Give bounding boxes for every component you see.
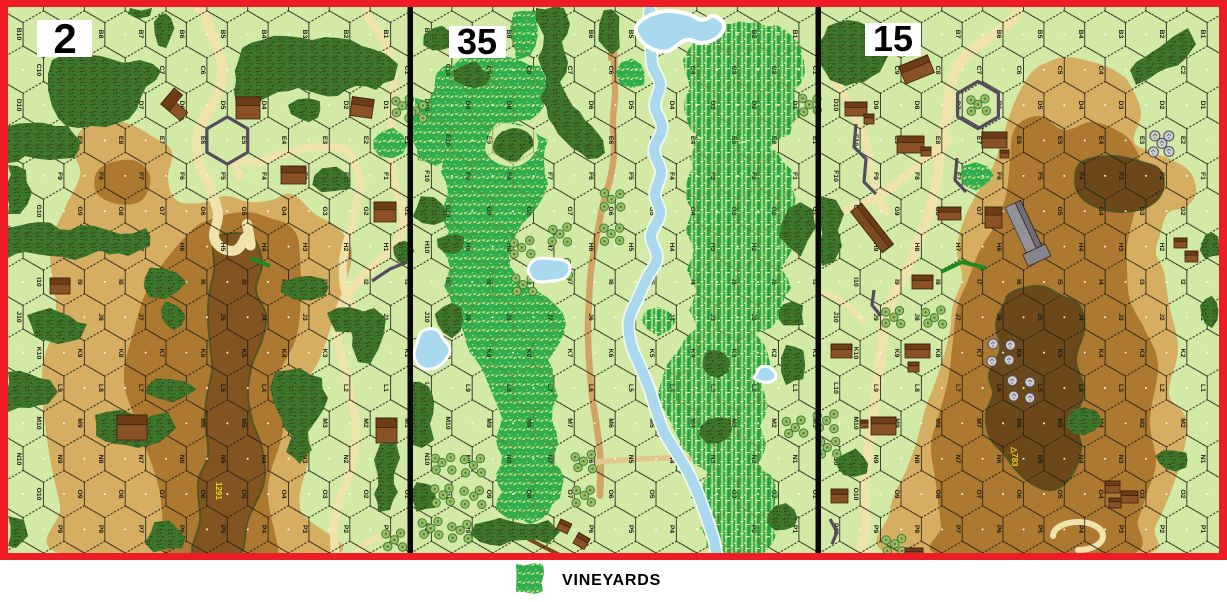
svg-text:15: 15 [873,18,913,59]
svg-text:H4: H4 [260,243,267,252]
svg-text:C4: C4 [1097,66,1104,75]
svg-text:I9: I9 [485,279,492,285]
svg-text:N8: N8 [913,455,920,464]
svg-text:O5: O5 [648,489,655,498]
svg-text:L3: L3 [1117,384,1124,392]
svg-text:G10: G10 [35,205,42,218]
svg-text:M3: M3 [321,418,328,428]
svg-text:J7: J7 [546,313,553,321]
svg-text:I3: I3 [1138,279,1145,285]
svg-text:O7: O7 [975,489,982,498]
svg-text:O4: O4 [1097,489,1104,498]
svg-text:O6: O6 [1015,489,1022,498]
svg-text:G9: G9 [76,206,83,215]
svg-text:D4: D4 [1077,101,1084,110]
svg-text:O5: O5 [240,489,247,498]
svg-text:P5: P5 [1036,525,1043,534]
svg-text:L5: L5 [219,384,226,392]
svg-text:F3: F3 [709,172,716,180]
svg-text:F5: F5 [1036,172,1043,180]
svg-text:L5: L5 [1036,384,1043,392]
svg-text:N7: N7 [546,455,553,464]
svg-text:N4: N4 [1077,455,1084,464]
svg-text:N7: N7 [954,455,961,464]
svg-text:H2: H2 [750,243,757,252]
svg-text:G3: G3 [321,206,328,215]
svg-text:K4: K4 [280,349,287,358]
svg-text:B3: B3 [1117,30,1124,39]
svg-text:G3: G3 [1138,206,1145,215]
svg-text:L2: L2 [1158,384,1165,392]
svg-text:C2: C2 [1179,66,1186,75]
svg-text:G5: G5 [1056,206,1063,215]
svg-text:L10: L10 [832,382,839,394]
svg-text:D8: D8 [913,101,920,110]
svg-text:D2: D2 [750,101,757,110]
svg-text:O9: O9 [76,489,83,498]
svg-text:E3: E3 [1138,136,1145,145]
svg-text:VINEYARDS: VINEYARDS [562,572,661,589]
svg-text:I7: I7 [975,279,982,285]
svg-text:F2: F2 [1158,172,1165,180]
svg-text:2: 2 [53,15,76,62]
svg-text:K5: K5 [240,349,247,358]
svg-text:F10: F10 [423,170,430,182]
svg-text:J9: J9 [464,313,471,321]
svg-text:J7: J7 [137,313,144,321]
svg-text:F4: F4 [668,172,675,180]
svg-text:D4: D4 [260,101,267,110]
svg-text:I9: I9 [893,279,900,285]
svg-text:N9: N9 [872,455,879,464]
svg-text:J5: J5 [1036,313,1043,321]
svg-text:K6: K6 [607,349,614,358]
svg-text:P6: P6 [587,525,594,534]
svg-text:O3: O3 [321,489,328,498]
svg-text:P1: P1 [1199,525,1206,534]
svg-text:C4: C4 [689,66,696,75]
svg-text:M10: M10 [35,416,42,429]
svg-text:N5: N5 [627,455,634,464]
svg-text:M5: M5 [1056,418,1063,428]
svg-text:P8: P8 [913,525,920,534]
svg-text:O3: O3 [1138,489,1145,498]
svg-text:P2: P2 [750,525,757,534]
svg-text:L9: L9 [872,384,879,392]
svg-text:K4: K4 [1097,349,1104,358]
svg-text:I6: I6 [199,279,206,285]
svg-text:C10: C10 [35,64,42,77]
svg-text:C6: C6 [607,66,614,75]
svg-text:E2: E2 [1179,136,1186,145]
svg-text:E7: E7 [975,136,982,145]
svg-text:H6: H6 [178,243,185,252]
svg-text:I5: I5 [1056,279,1063,285]
svg-text:P4: P4 [668,525,675,534]
svg-text:E4: E4 [280,136,287,145]
svg-text:L1: L1 [791,384,798,392]
svg-text:L6: L6 [995,384,1002,392]
svg-text:F8: F8 [913,172,920,180]
svg-text:J10: J10 [423,311,430,323]
svg-text:K8: K8 [117,349,124,358]
svg-text:G2: G2 [770,206,777,215]
svg-text:D9: D9 [872,101,879,110]
svg-text:G4: G4 [1097,206,1104,215]
svg-text:△783: △783 [1010,446,1019,467]
svg-text:F6: F6 [587,172,594,180]
svg-text:F1: F1 [1199,172,1206,180]
svg-text:N4: N4 [260,455,267,464]
svg-text:I8: I8 [934,279,941,285]
svg-text:E2: E2 [362,136,369,145]
svg-text:K9: K9 [76,349,83,358]
svg-text:H4: H4 [1077,243,1084,252]
svg-text:B2: B2 [342,30,349,39]
svg-text:E3: E3 [321,136,328,145]
svg-text:G5: G5 [240,206,247,215]
svg-text:B2: B2 [1158,30,1165,39]
svg-text:H3: H3 [301,243,308,252]
svg-text:L4: L4 [260,384,267,392]
svg-text:D9: D9 [464,101,471,110]
svg-text:J8: J8 [97,313,104,321]
svg-text:P2: P2 [1158,525,1165,534]
svg-text:G6: G6 [199,206,206,215]
svg-text:E6: E6 [199,136,206,145]
svg-text:M6: M6 [607,418,614,428]
svg-text:B1: B1 [382,30,389,39]
svg-text:35: 35 [457,21,497,62]
svg-text:J2: J2 [750,313,757,321]
svg-text:E9: E9 [485,136,492,145]
svg-text:F4: F4 [1077,172,1084,180]
svg-text:N8: N8 [97,455,104,464]
svg-text:M6: M6 [1015,418,1022,428]
svg-text:L8: L8 [913,384,920,392]
svg-text:I10: I10 [852,277,859,287]
svg-text:M8: M8 [525,418,532,428]
svg-text:F9: F9 [872,172,879,180]
svg-text:1291: 1291 [214,482,223,500]
svg-text:F5: F5 [627,172,634,180]
svg-text:B5: B5 [1036,30,1043,39]
svg-text:P3: P3 [301,525,308,534]
svg-text:L4: L4 [1077,384,1084,392]
svg-text:K6: K6 [1015,349,1022,358]
svg-text:I4: I4 [1097,279,1104,285]
svg-text:J3: J3 [709,313,716,321]
svg-text:E7: E7 [158,136,165,145]
svg-text:B5: B5 [219,30,226,39]
svg-text:L7: L7 [954,384,961,392]
svg-text:O8: O8 [117,489,124,498]
svg-text:M2: M2 [1179,418,1186,428]
svg-text:G9: G9 [485,206,492,215]
svg-text:D2: D2 [1158,101,1165,110]
svg-text:H7: H7 [954,243,961,252]
svg-text:D5: D5 [627,101,634,110]
svg-text:O8: O8 [934,489,941,498]
svg-text:D1: D1 [1199,101,1206,110]
svg-text:K9: K9 [893,349,900,358]
svg-text:D3: D3 [709,101,716,110]
svg-text:B10: B10 [15,28,22,41]
svg-text:H8: H8 [913,243,920,252]
svg-text:G8: G8 [525,206,532,215]
svg-text:I10: I10 [35,277,42,287]
svg-text:G2: G2 [362,206,369,215]
svg-text:H2: H2 [1158,243,1165,252]
svg-text:B4: B4 [260,30,267,39]
svg-text:B3: B3 [301,30,308,39]
svg-text:O10: O10 [35,488,42,501]
svg-text:P4: P4 [260,525,267,534]
svg-text:J6: J6 [587,313,594,321]
svg-text:L2: L2 [750,384,757,392]
svg-text:H9: H9 [464,243,471,252]
svg-text:M6: M6 [199,418,206,428]
svg-text:D8: D8 [505,101,512,110]
svg-text:P5: P5 [219,525,226,534]
svg-text:H4: H4 [668,243,675,252]
svg-text:G9: G9 [893,206,900,215]
svg-text:K7: K7 [975,349,982,358]
svg-text:L1: L1 [1199,384,1206,392]
svg-text:E6: E6 [607,136,614,145]
svg-text:I2: I2 [1179,279,1186,285]
svg-text:H5: H5 [627,243,634,252]
svg-text:K3: K3 [1138,349,1145,358]
svg-text:F3: F3 [1117,172,1124,180]
svg-text:N5: N5 [1036,455,1043,464]
svg-text:L2: L2 [342,384,349,392]
svg-text:N1: N1 [1199,455,1206,464]
svg-text:M4: M4 [689,418,696,428]
svg-text:C2: C2 [770,66,777,75]
svg-text:B8: B8 [97,30,104,39]
svg-text:H6: H6 [995,243,1002,252]
svg-text:J3: J3 [301,313,308,321]
svg-text:P7: P7 [137,525,144,534]
svg-text:C5: C5 [1056,66,1063,75]
svg-text:J10: J10 [15,311,22,323]
svg-text:J6: J6 [995,313,1002,321]
svg-text:H10: H10 [423,241,430,254]
svg-text:F8: F8 [505,172,512,180]
svg-text:O5: O5 [1056,489,1063,498]
svg-text:J8: J8 [505,313,512,321]
svg-text:H5: H5 [219,243,226,252]
svg-text:P9: P9 [56,525,63,534]
svg-text:J8: J8 [913,313,920,321]
svg-text:D10: D10 [15,99,22,112]
svg-text:E8: E8 [117,136,124,145]
svg-text:O2: O2 [362,489,369,498]
svg-text:I2: I2 [362,279,369,285]
svg-text:F4: F4 [260,172,267,180]
svg-text:I2: I2 [770,279,777,285]
svg-text:I9: I9 [76,279,83,285]
svg-text:E4: E4 [1097,136,1104,145]
svg-text:O8: O8 [525,489,532,498]
svg-text:P6: P6 [995,525,1002,534]
svg-text:P3: P3 [1117,525,1124,534]
svg-text:B7: B7 [137,30,144,39]
svg-text:I6: I6 [607,279,614,285]
svg-text:P7: P7 [954,525,961,534]
svg-text:G3: G3 [730,206,737,215]
svg-text:O2: O2 [1179,489,1186,498]
svg-text:L3: L3 [709,384,716,392]
svg-text:F6: F6 [178,172,185,180]
svg-text:D3: D3 [1117,101,1124,110]
svg-text:M7: M7 [975,418,982,428]
svg-text:P9: P9 [872,525,879,534]
svg-text:D6: D6 [587,101,594,110]
svg-text:F8: F8 [97,172,104,180]
svg-text:N9: N9 [56,455,63,464]
svg-text:G7: G7 [158,206,165,215]
svg-text:M9: M9 [485,418,492,428]
svg-text:D4: D4 [668,101,675,110]
svg-text:L4: L4 [668,384,675,392]
svg-text:I5: I5 [240,279,247,285]
svg-text:K8: K8 [934,349,941,358]
svg-text:L9: L9 [464,384,471,392]
svg-text:K8: K8 [525,349,532,358]
svg-text:O7: O7 [158,489,165,498]
svg-text:L8: L8 [97,384,104,392]
svg-text:O4: O4 [280,489,287,498]
svg-text:H3: H3 [709,243,716,252]
svg-text:B4: B4 [1077,30,1084,39]
svg-text:E5: E5 [240,136,247,145]
svg-text:P2: P2 [342,525,349,534]
svg-text:K10: K10 [852,347,859,360]
svg-text:M2: M2 [362,418,369,428]
svg-text:O9: O9 [893,489,900,498]
svg-text:I8: I8 [117,279,124,285]
svg-text:J7: J7 [954,313,961,321]
svg-text:E6: E6 [1015,136,1022,145]
svg-text:J2: J2 [1158,313,1165,321]
svg-text:B6: B6 [178,30,185,39]
svg-text:J10: J10 [832,311,839,323]
svg-text:O9: O9 [485,489,492,498]
svg-text:O6: O6 [199,489,206,498]
svg-text:F10: F10 [832,170,839,182]
svg-text:F7: F7 [546,172,553,180]
svg-text:F7: F7 [137,172,144,180]
svg-text:M3: M3 [1138,418,1145,428]
svg-text:E8: E8 [934,136,941,145]
svg-text:M9: M9 [76,418,83,428]
svg-text:I3: I3 [730,279,737,285]
svg-text:C7: C7 [975,66,982,75]
svg-text:L8: L8 [505,384,512,392]
svg-text:B7: B7 [954,30,961,39]
svg-text:F2: F2 [750,172,757,180]
svg-text:L7: L7 [137,384,144,392]
svg-text:C6: C6 [1015,66,1022,75]
svg-text:K4: K4 [689,349,696,358]
svg-text:K3: K3 [321,349,328,358]
svg-text:H6: H6 [587,243,594,252]
svg-text:H3: H3 [1117,243,1124,252]
svg-text:K5: K5 [1056,349,1063,358]
svg-text:N5: N5 [219,455,226,464]
svg-text:O2: O2 [770,489,777,498]
svg-text:L1: L1 [382,384,389,392]
svg-text:N10: N10 [423,453,430,466]
svg-text:M7: M7 [566,418,573,428]
svg-text:M5: M5 [240,418,247,428]
svg-text:G7: G7 [975,206,982,215]
svg-text:N2: N2 [342,455,349,464]
svg-text:B1: B1 [1199,30,1206,39]
svg-text:D1: D1 [382,101,389,110]
svg-text:F1: F1 [382,172,389,180]
svg-text:F9: F9 [464,172,471,180]
svg-text:M2: M2 [770,418,777,428]
svg-text:C8: C8 [525,66,532,75]
svg-text:P4: P4 [1077,525,1084,534]
svg-text:F6: F6 [995,172,1002,180]
svg-text:N10: N10 [15,453,22,466]
svg-text:H1: H1 [382,243,389,252]
svg-text:K7: K7 [566,349,573,358]
svg-text:F9: F9 [56,172,63,180]
svg-text:N6: N6 [178,455,185,464]
svg-text:K7: K7 [158,349,165,358]
svg-text:B5: B5 [627,30,634,39]
svg-text:K9: K9 [485,349,492,358]
svg-text:C8: C8 [934,66,941,75]
svg-text:D2: D2 [342,101,349,110]
svg-text:B6: B6 [995,30,1002,39]
svg-text:D5: D5 [219,101,226,110]
svg-text:J5: J5 [219,313,226,321]
svg-text:D10: D10 [832,99,839,112]
svg-text:C6: C6 [199,66,206,75]
svg-text:K5: K5 [648,349,655,358]
svg-text:P5: P5 [627,525,634,534]
svg-text:N8: N8 [505,455,512,464]
svg-text:I6: I6 [1015,279,1022,285]
svg-text:N3: N3 [709,455,716,464]
svg-text:M10: M10 [852,416,859,429]
svg-text:P8: P8 [97,525,104,534]
svg-text:B2: B2 [750,30,757,39]
svg-text:O6: O6 [607,489,614,498]
svg-text:F1: F1 [791,172,798,180]
svg-text:N6: N6 [995,455,1002,464]
svg-text:K6: K6 [199,349,206,358]
svg-text:G8: G8 [117,206,124,215]
svg-text:K3: K3 [730,349,737,358]
svg-text:L7: L7 [546,384,553,392]
svg-text:N7: N7 [137,455,144,464]
svg-text:B6: B6 [587,30,594,39]
svg-text:G7: G7 [566,206,573,215]
svg-text:O3: O3 [730,489,737,498]
svg-text:G2: G2 [1179,206,1186,215]
svg-text:O10: O10 [852,488,859,501]
svg-text:K2: K2 [770,349,777,358]
svg-text:H2: H2 [342,243,349,252]
svg-text:M10: M10 [444,416,451,429]
